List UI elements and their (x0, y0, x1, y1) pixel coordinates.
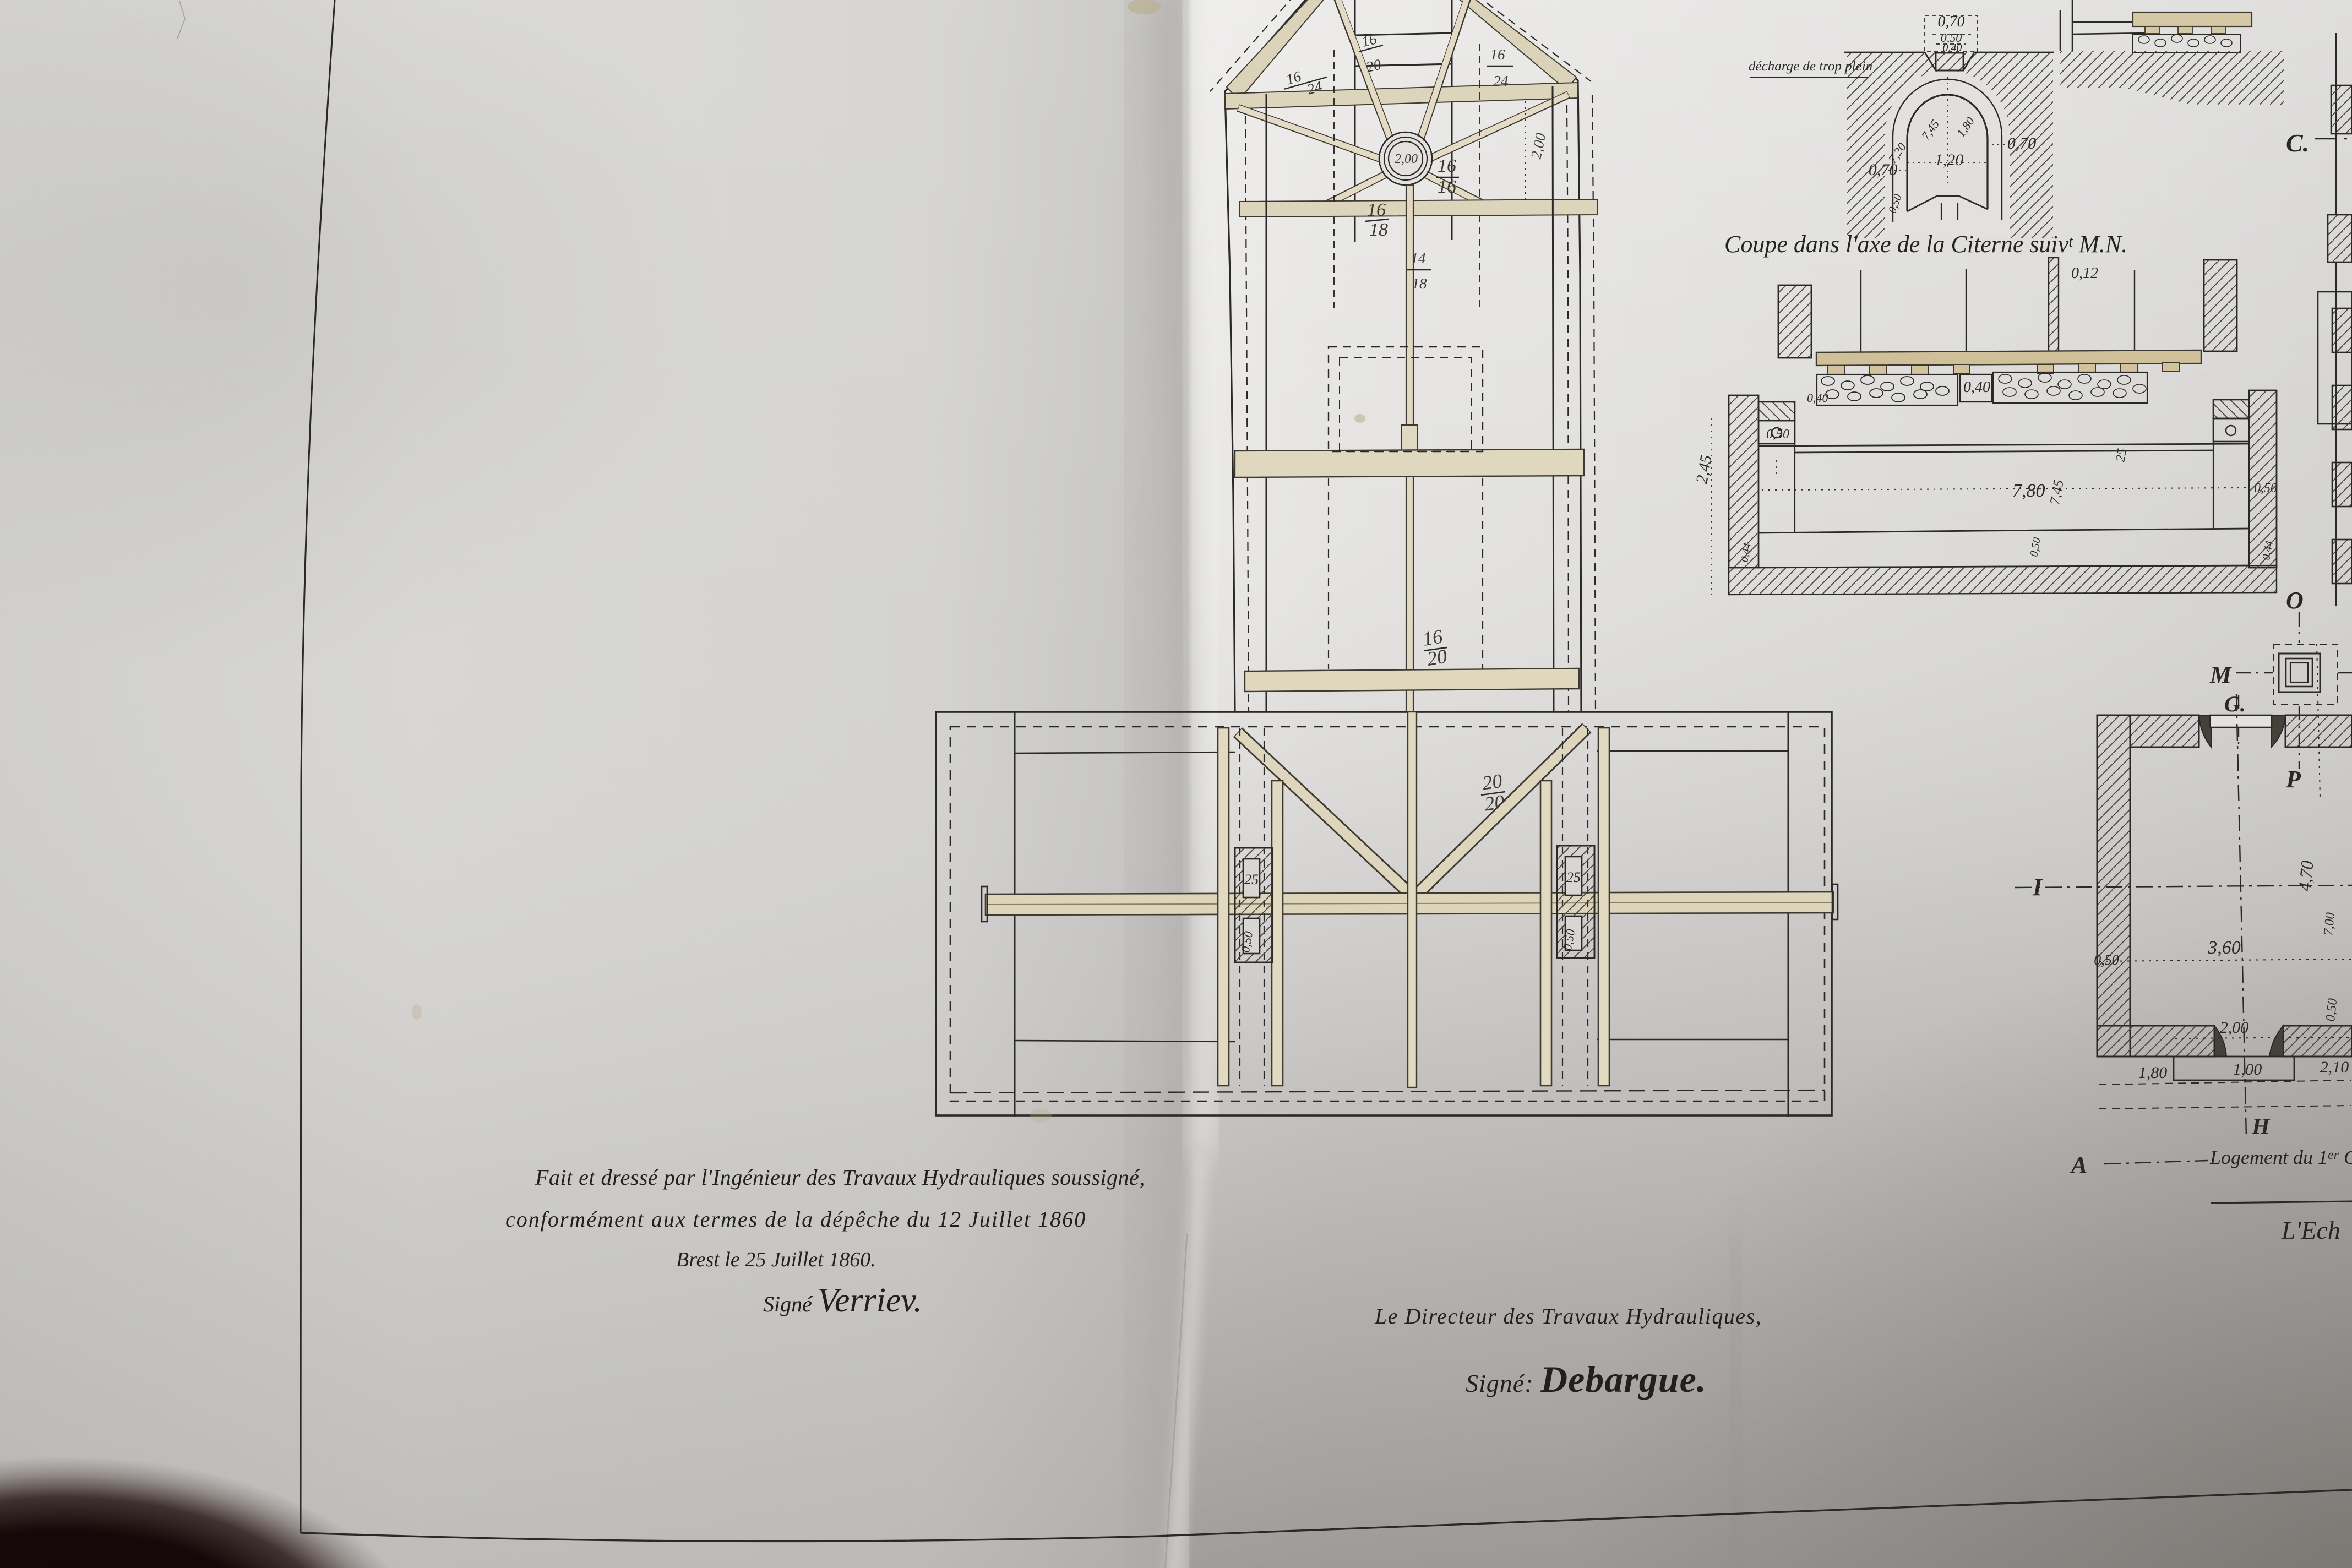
svg-text:Fait et dressé par l'Ingénieur: Fait et dressé par l'Ingénieur des Trava… (535, 1165, 1145, 1190)
svg-text:L'Ech: L'Ech (2281, 1216, 2340, 1244)
svg-text:24: 24 (1494, 73, 1509, 89)
svg-text:M: M (2209, 661, 2233, 688)
svg-text:0,40: 0,40 (1963, 379, 1990, 396)
svg-text:Le Directeur des Travaux Hydra: Le Directeur des Travaux Hydrauliques, (1374, 1304, 1762, 1329)
svg-text:1,00: 1,00 (2233, 1060, 2262, 1079)
svg-text:4,70: 4,70 (2294, 859, 2317, 892)
svg-text:2,00: 2,00 (1395, 152, 1418, 166)
svg-text:O: O (2286, 587, 2304, 614)
svg-text:7,80: 7,80 (2012, 481, 2045, 501)
svg-text:1,80: 1,80 (2138, 1064, 2168, 1082)
svg-text:2,00: 2,00 (2220, 1019, 2249, 1037)
svg-text:16: 16 (1490, 46, 1506, 63)
svg-text:P: P (2285, 766, 2301, 793)
svg-text:G.: G. (2224, 692, 2246, 716)
svg-text:25: 25 (2113, 448, 2130, 463)
svg-text:2,10: 2,10 (2320, 1058, 2349, 1076)
svg-text:0,40: 0,40 (1943, 42, 1962, 54)
svg-text:14: 14 (1411, 250, 1426, 266)
svg-text:Brest le 25 Juillet 1860.: Brest le 25 Juillet 1860. (676, 1248, 876, 1271)
svg-text:0,70: 0,70 (2007, 134, 2037, 153)
svg-text:16: 16 (1438, 177, 1456, 197)
svg-text:Coupe dans l'axe de la Citerne: Coupe dans l'axe de la Citerne suivt M.N… (1724, 231, 2127, 258)
svg-text:0,50: 0,50 (2323, 998, 2340, 1022)
svg-text:0,50: 0,50 (1766, 427, 1789, 442)
svg-text:18: 18 (1369, 220, 1388, 240)
svg-text:C.: C. (2286, 129, 2309, 157)
svg-text:7,00: 7,00 (2321, 912, 2338, 936)
svg-text:1,20: 1,20 (1935, 151, 1964, 169)
svg-text:0,70: 0,70 (1938, 13, 1965, 30)
svg-text:H: H (2251, 1114, 2271, 1140)
svg-text:0,50: 0,50 (2094, 952, 2119, 968)
svg-text:décharge de trop plein: décharge de trop plein (1749, 59, 1872, 74)
svg-text:25: 25 (1566, 869, 1581, 885)
svg-text:I: I (2032, 874, 2043, 901)
svg-text:16: 16 (1367, 200, 1386, 220)
svg-text:0,50: 0,50 (2254, 481, 2277, 496)
svg-text:3,60: 3,60 (2207, 938, 2241, 958)
svg-text:25: 25 (1244, 872, 1259, 888)
svg-text:conformément aux termes de la: conformément aux termes de la dépêche du… (505, 1207, 1086, 1232)
svg-text:A: A (2070, 1151, 2087, 1178)
svg-text:0,12: 0,12 (2071, 265, 2098, 282)
svg-text:18: 18 (1412, 275, 1428, 292)
svg-text:16: 16 (1438, 156, 1456, 176)
svg-text:0,40: 0,40 (1807, 391, 1828, 405)
